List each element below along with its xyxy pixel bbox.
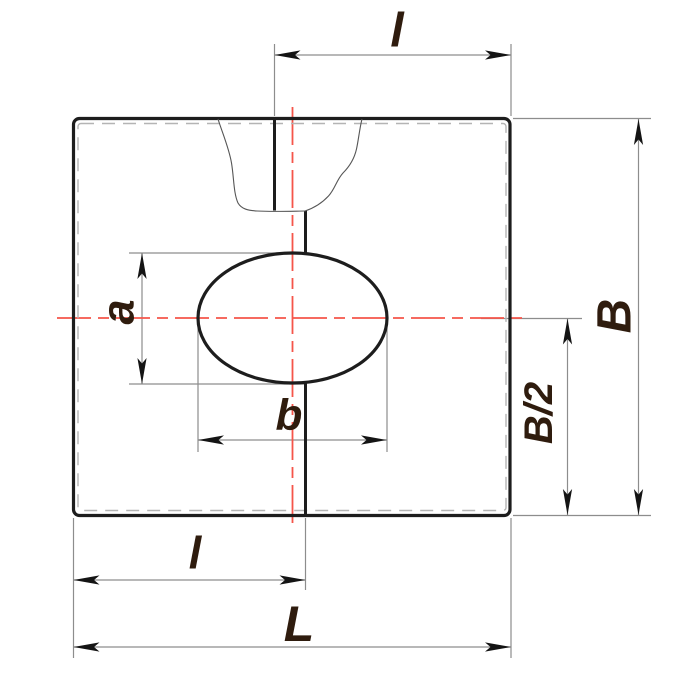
- label-L: L: [284, 596, 315, 652]
- label-B-half: B/2: [517, 382, 561, 444]
- canvas-background: [0, 0, 700, 700]
- label-a: a: [93, 299, 144, 324]
- label-l-bottom: l: [189, 528, 203, 579]
- label-B: B: [589, 299, 642, 334]
- label-b: b: [276, 391, 303, 440]
- technical-drawing-page: l B B/2 a b l L: [0, 0, 700, 700]
- dimension-drawing-canvas: l B B/2 a b l L: [0, 0, 700, 700]
- label-l-top: l: [390, 5, 405, 58]
